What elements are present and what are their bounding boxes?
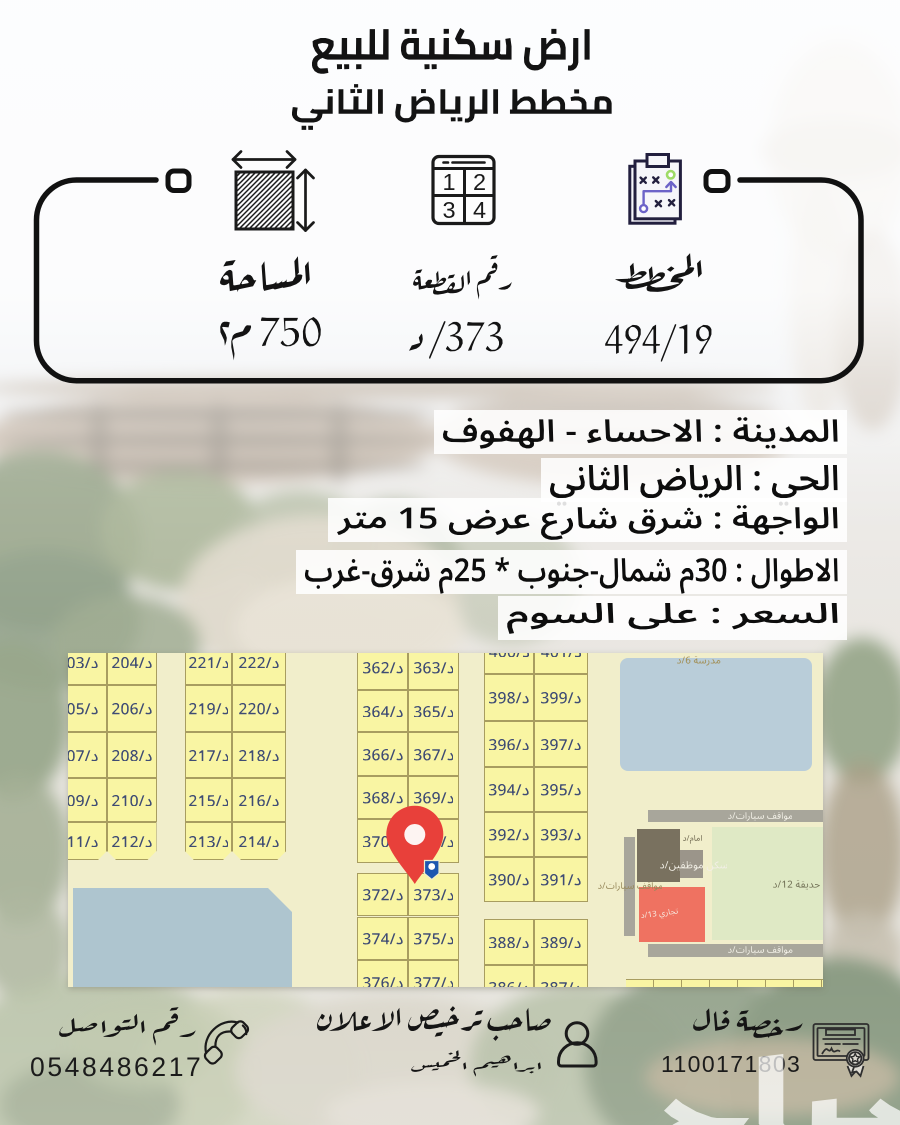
svg-text:1: 1	[442, 169, 455, 195]
svg-text:2: 2	[473, 169, 486, 195]
svg-text:4: 4	[473, 197, 486, 223]
svg-text:3: 3	[442, 197, 455, 223]
